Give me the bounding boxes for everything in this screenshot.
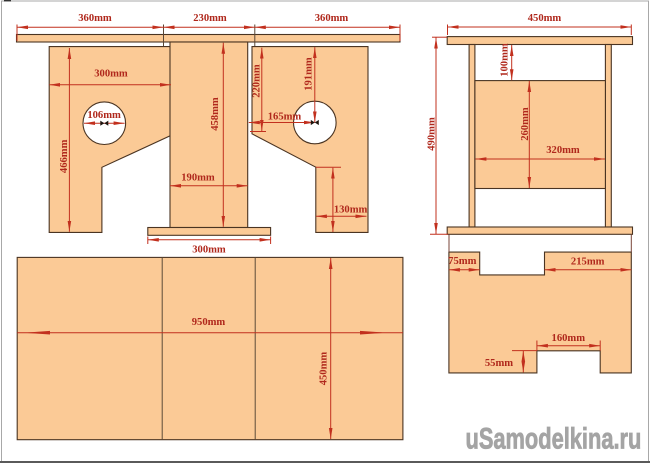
svg-text:100mm: 100mm bbox=[500, 43, 511, 77]
svg-text:458mm: 458mm bbox=[210, 97, 221, 131]
svg-text:950mm: 950mm bbox=[192, 317, 226, 328]
svg-text:220mm: 220mm bbox=[252, 64, 263, 98]
svg-text:215mm: 215mm bbox=[571, 257, 605, 268]
svg-text:300mm: 300mm bbox=[94, 69, 128, 80]
svg-text:490mm: 490mm bbox=[426, 117, 437, 151]
svg-text:75mm: 75mm bbox=[448, 256, 476, 267]
svg-text:260mm: 260mm bbox=[520, 107, 531, 141]
svg-text:130mm: 130mm bbox=[334, 205, 368, 216]
svg-text:300mm: 300mm bbox=[192, 245, 226, 256]
svg-text:55mm: 55mm bbox=[485, 358, 513, 369]
svg-text:360mm: 360mm bbox=[315, 13, 349, 24]
svg-text:uSamodelkina.ru: uSamodelkina.ru bbox=[466, 421, 642, 455]
svg-text:450mm: 450mm bbox=[528, 13, 562, 24]
svg-text:450mm: 450mm bbox=[319, 352, 330, 386]
svg-text:160mm: 160mm bbox=[552, 333, 586, 344]
svg-text:466mm: 466mm bbox=[59, 139, 70, 173]
svg-text:106mm: 106mm bbox=[87, 110, 121, 121]
svg-text:230mm: 230mm bbox=[193, 13, 227, 24]
svg-text:191mm: 191mm bbox=[304, 57, 315, 91]
svg-text:320mm: 320mm bbox=[546, 145, 580, 156]
svg-text:165mm: 165mm bbox=[268, 112, 302, 123]
svg-text:190mm: 190mm bbox=[181, 173, 215, 184]
svg-text:360mm: 360mm bbox=[78, 13, 112, 24]
